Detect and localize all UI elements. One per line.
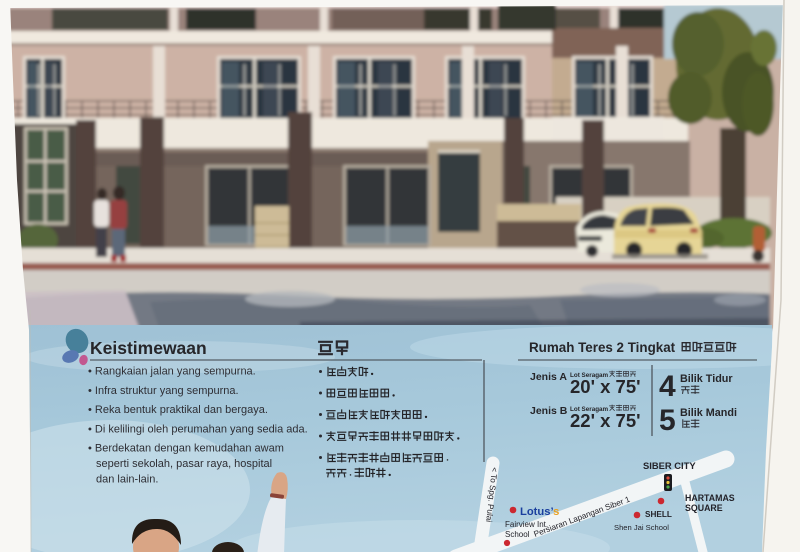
svg-text:• Reka bentuk praktikal dan be: • Reka bentuk praktikal dan bergaya. — [88, 404, 268, 416]
svg-text:HARTAMAS: HARTAMAS — [685, 493, 735, 503]
svg-text:20' x 75': 20' x 75' — [570, 376, 641, 397]
svg-text:seperti sekolah, pasar raya, h: seperti sekolah, pasar raya, hospital — [96, 458, 272, 470]
svg-text:• Infra struktur yang sempurna: • Infra struktur yang sempurna. — [88, 385, 239, 397]
svg-text:SHELL: SHELL — [645, 510, 672, 519]
svg-text:• Berdekatan dengan kemudahan: • Berdekatan dengan kemudahan awam — [88, 443, 284, 455]
svg-text:SIBER CITY: SIBER CITY — [643, 460, 696, 471]
svg-text:School: School — [505, 530, 530, 539]
svg-text:Shen Jai School: Shen Jai School — [614, 523, 669, 532]
svg-text:Rumah Teres 2 Tingkat: Rumah Teres 2 Tingkat — [529, 340, 676, 355]
svg-text:Fairview Int.: Fairview Int. — [505, 520, 548, 529]
svg-text:Jenis B: Jenis B — [530, 405, 568, 417]
svg-text:Lotus’s: Lotus’s — [520, 506, 559, 518]
svg-text:22' x 75': 22' x 75' — [570, 410, 641, 431]
svg-text:• Rangkaian jalan yang sempurn: • Rangkaian jalan yang sempurna. — [88, 366, 256, 378]
svg-text:Bilik Mandi: Bilik Mandi — [680, 407, 737, 419]
svg-text:5: 5 — [659, 404, 676, 437]
svg-text:Bilik Tidur: Bilik Tidur — [680, 373, 733, 385]
svg-text:SQUARE: SQUARE — [685, 503, 723, 513]
svg-text:4: 4 — [659, 370, 676, 403]
svg-text:Jenis A: Jenis A — [530, 371, 567, 383]
svg-text:• Di kelilingi oleh perumahan: • Di kelilingi oleh perumahan yang sedia… — [88, 423, 308, 435]
svg-text:dan lain-lain.: dan lain-lain. — [96, 474, 158, 486]
svg-text:Keistimewaan: Keistimewaan — [90, 338, 207, 358]
